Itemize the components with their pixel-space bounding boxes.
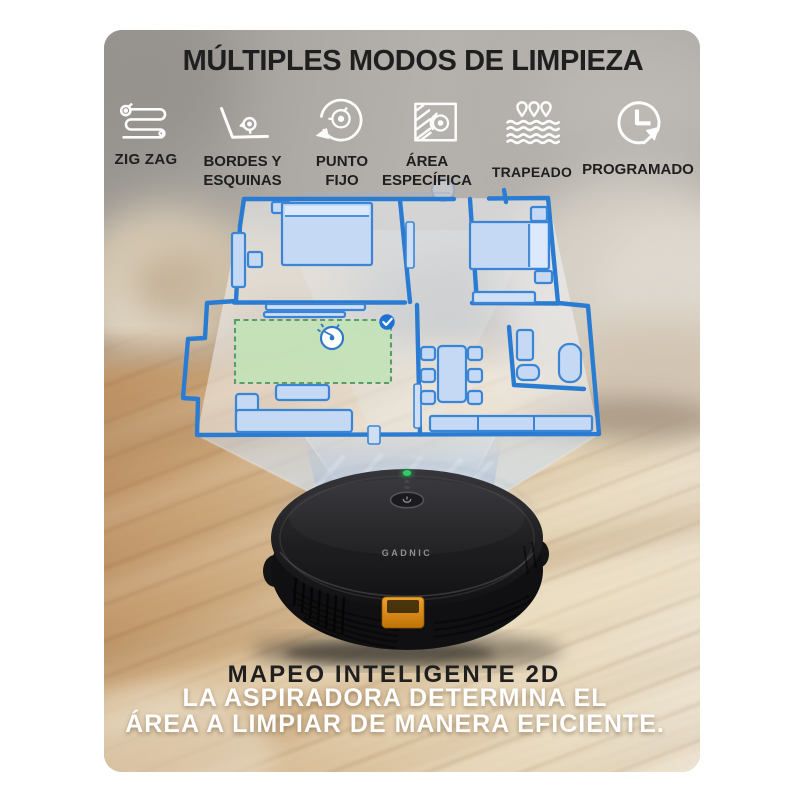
svg-text:GADNIC: GADNIC [382,548,433,558]
